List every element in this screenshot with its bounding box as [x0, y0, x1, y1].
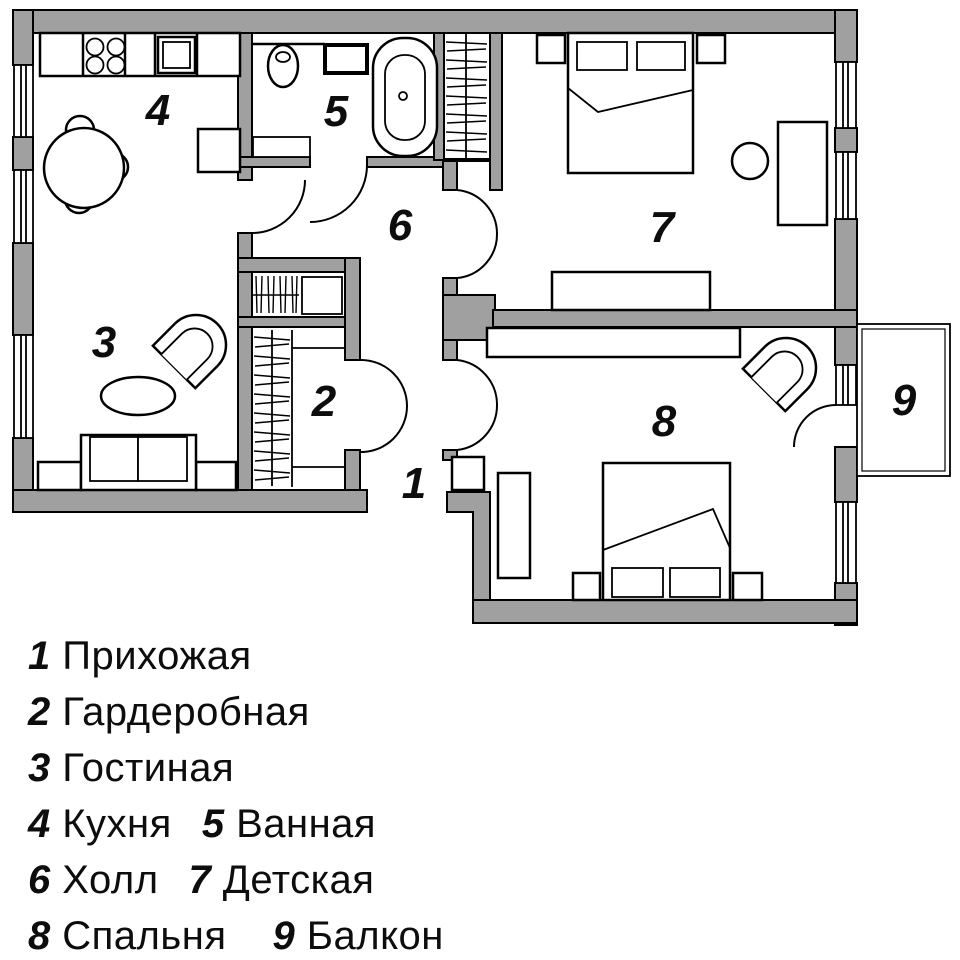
door-living-room	[252, 180, 305, 233]
sofa-cushion	[90, 437, 138, 481]
legend-row: 8Спальня 9Балкон	[28, 914, 464, 959]
window	[836, 502, 856, 583]
living-room-furniture	[38, 303, 238, 490]
upper-closet-shelf-box	[302, 277, 342, 314]
floor-plan: 1 2 3 4 5 6 7 8 9	[0, 0, 960, 640]
nightstand	[733, 573, 762, 600]
wardrobe-tall	[498, 473, 530, 578]
kitchen-counter	[40, 33, 240, 76]
wall-wardrobe-top	[238, 258, 360, 272]
legend-num-8: 8	[28, 914, 50, 959]
legend-label-4: Кухня	[62, 802, 172, 847]
door-bathroom	[310, 165, 367, 222]
door-bedroom-leaf	[457, 360, 497, 405]
nightstand	[573, 573, 600, 600]
floor-plan-page: 1 2 3 4 5 6 7 8 9 1Прихожая 2Гардеробная…	[0, 0, 960, 960]
wall-right-seg	[835, 10, 857, 62]
legend-row: 4Кухня 5Ванная	[28, 802, 464, 847]
children-room-furniture	[537, 33, 827, 310]
wall-bottom-bedroom	[473, 600, 857, 623]
wall-hallway-bedroom	[447, 492, 490, 600]
legend-num-7: 7	[189, 858, 211, 903]
nightstand	[537, 35, 565, 63]
wall-wardrobe-right	[345, 258, 360, 360]
wall-left-seg	[13, 243, 33, 335]
legend-num-5: 5	[202, 802, 224, 847]
wall-bathroom-bottom-right	[367, 157, 444, 167]
pillow	[637, 42, 685, 70]
window-balcony-door	[836, 365, 856, 405]
side-table	[38, 462, 81, 490]
bed	[568, 33, 693, 173]
legend-num-1: 1	[28, 634, 50, 679]
legend-row: 6Холл 7Детская	[28, 858, 464, 903]
window	[14, 65, 33, 137]
legend-num-3: 3	[28, 746, 50, 791]
door-wardrobe-leaf	[360, 406, 407, 452]
window	[14, 335, 33, 438]
hall-closet	[443, 34, 491, 160]
legend-row: 3Гостиная	[28, 746, 464, 791]
legend-label-3: Гостиная	[62, 746, 234, 791]
bed	[603, 463, 730, 600]
legend-label-8: Спальня	[62, 914, 226, 959]
door-bedroom-leaf	[457, 405, 497, 450]
bathtub-icon	[373, 38, 437, 156]
wall-right-seg	[835, 219, 857, 365]
window	[836, 152, 856, 219]
room-label-bath: 5	[324, 87, 349, 136]
room-label-bedroom: 8	[652, 397, 677, 446]
pillow	[577, 42, 627, 70]
sofa	[38, 435, 236, 490]
window	[836, 62, 856, 128]
bedroom-furniture	[452, 326, 828, 600]
armchair-icon	[153, 303, 239, 389]
wall-hall-children	[443, 278, 457, 295]
legend-num-4: 4	[28, 802, 50, 847]
room-label-living: 3	[92, 318, 116, 367]
room-label-hallway: 1	[402, 459, 426, 508]
wall-hall-children	[443, 160, 457, 190]
legend-label-5: Ванная	[236, 802, 376, 847]
wall-right-seg	[835, 128, 857, 152]
legend-label-9: Балкон	[307, 914, 444, 959]
legend-num-6: 6	[28, 858, 50, 903]
bathroom-door-threshold	[253, 137, 310, 157]
toilet-icon	[268, 45, 298, 87]
wall-closet-right	[490, 33, 502, 190]
window	[14, 170, 33, 243]
side-table	[196, 462, 236, 490]
wall-left-seg	[13, 10, 33, 65]
room-label-wardrobe: 2	[311, 377, 337, 426]
legend-row: 2Гардеробная	[28, 690, 464, 735]
wall-top	[13, 10, 857, 33]
floor-plan-drawing: 1 2 3 4 5 6 7 8 9	[0, 0, 960, 640]
dresser	[552, 272, 710, 310]
legend-num-2: 2	[28, 690, 50, 735]
legend: 1Прихожая 2Гардеробная 3Гостиная 4Кухня …	[28, 634, 464, 959]
room-label-kitchen: 4	[145, 86, 170, 135]
legend-label-6: Холл	[62, 858, 158, 903]
kitchen-cabinet	[198, 129, 240, 172]
hallway-cabinet	[452, 457, 484, 490]
wall-bathroom-bottom-left	[238, 157, 310, 167]
sofa-cushion	[138, 437, 187, 481]
legend-label-1: Прихожая	[62, 634, 251, 679]
wall-left-seg	[13, 137, 33, 170]
legend-label-2: Гардеробная	[62, 690, 309, 735]
door-children-leaf	[457, 190, 497, 234]
door-children-leaf	[457, 234, 497, 278]
table-round	[44, 128, 124, 208]
wall-wardrobe-shelf	[238, 317, 360, 327]
pillow	[670, 568, 720, 597]
nightstand	[697, 35, 725, 63]
wall-right-seg	[835, 447, 857, 502]
door-balcony	[794, 405, 836, 447]
dining-table	[44, 116, 128, 213]
wall-children-bedroom-divider	[493, 310, 857, 327]
coffee-table	[101, 377, 175, 415]
legend-label-7: Детская	[223, 858, 375, 903]
door-wardrobe-leaf	[360, 360, 407, 406]
wall-hall-bedroom	[443, 340, 457, 360]
desk	[778, 122, 827, 225]
pillow	[612, 568, 663, 597]
armchair-icon	[743, 326, 829, 412]
room-label-hall: 6	[388, 201, 413, 250]
desk-chair	[732, 143, 768, 179]
upper-closet-hatching	[253, 276, 299, 313]
legend-num-9: 9	[272, 914, 294, 959]
room-label-balcony: 9	[892, 376, 917, 425]
dresser	[487, 328, 740, 357]
bath-sink-icon	[325, 45, 367, 73]
sink-icon	[158, 37, 195, 73]
kitchen-furniture	[40, 33, 240, 213]
wall-bottom-left	[13, 490, 367, 512]
wall-wardrobe-right-stub	[345, 450, 360, 490]
room-label-children: 7	[650, 203, 677, 252]
legend-row: 1Прихожая	[28, 634, 464, 679]
